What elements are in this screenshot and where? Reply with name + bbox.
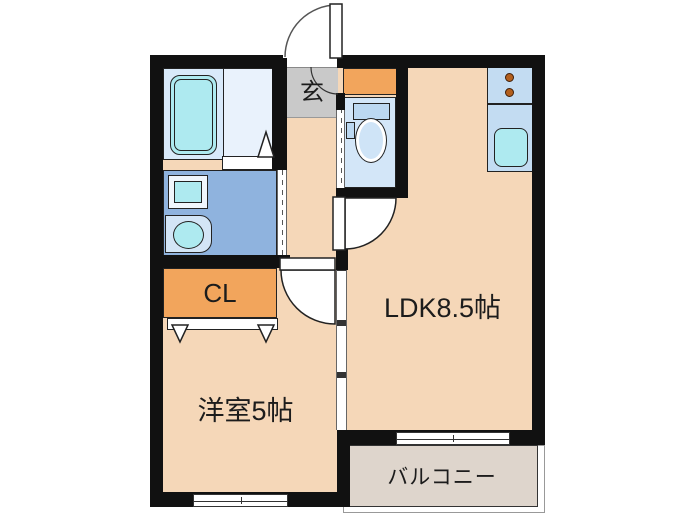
bathtub [170,75,217,155]
entrance-door-leaf [330,4,342,58]
partition-joint [337,372,346,378]
toilet-bowl [355,118,387,163]
wall-top-left [150,55,283,68]
wall-toilet-bottom [336,188,408,198]
stove-burner-1 [505,73,514,82]
ldk-label: LDK8.5帖 [355,285,530,325]
washroom-folding-door [277,170,287,258]
wall-top-right [337,55,545,68]
toilet-room [343,97,396,188]
balcony-sliding-door [396,432,510,445]
wall-toilet-right [396,60,408,198]
entrance-door-arc [285,5,337,57]
partition-joint [337,320,346,326]
vanity-sink [173,221,204,249]
shoe-cabinet [343,68,397,95]
closet-door-bar [167,318,278,330]
washing-machine [168,175,208,209]
washing-machine-tub [174,181,202,203]
balcony-label: バルコニー [348,461,536,491]
western-room-window [193,494,288,507]
floor-plan: 玄 CL LDK8.5帖 洋室5帖 バルコニー [0,0,700,525]
closet-label: CL [163,268,277,318]
genkan-label: 玄 [286,64,338,114]
wall-washroom-closet [150,255,290,268]
wall-bath-genkan [272,58,287,170]
vanity-counter [165,215,212,253]
bathtub-inner-line [174,79,213,151]
bathroom-wash-area [223,69,274,161]
bathroom-door-bar [222,156,278,170]
western-room-label: 洋室5帖 [158,390,333,426]
wall-right [532,55,545,445]
stove-burner-2 [505,88,514,97]
washroom [163,170,277,256]
sliding-partition [336,268,347,430]
toilet-door [336,108,345,188]
kitchen-stove [487,64,533,104]
kitchen-sink-unit [487,104,533,172]
wall-hall-nub [336,248,348,270]
kitchen-sink [494,128,528,167]
bathroom [163,68,273,160]
toilet-remote [346,122,355,139]
wall-left [150,55,163,507]
